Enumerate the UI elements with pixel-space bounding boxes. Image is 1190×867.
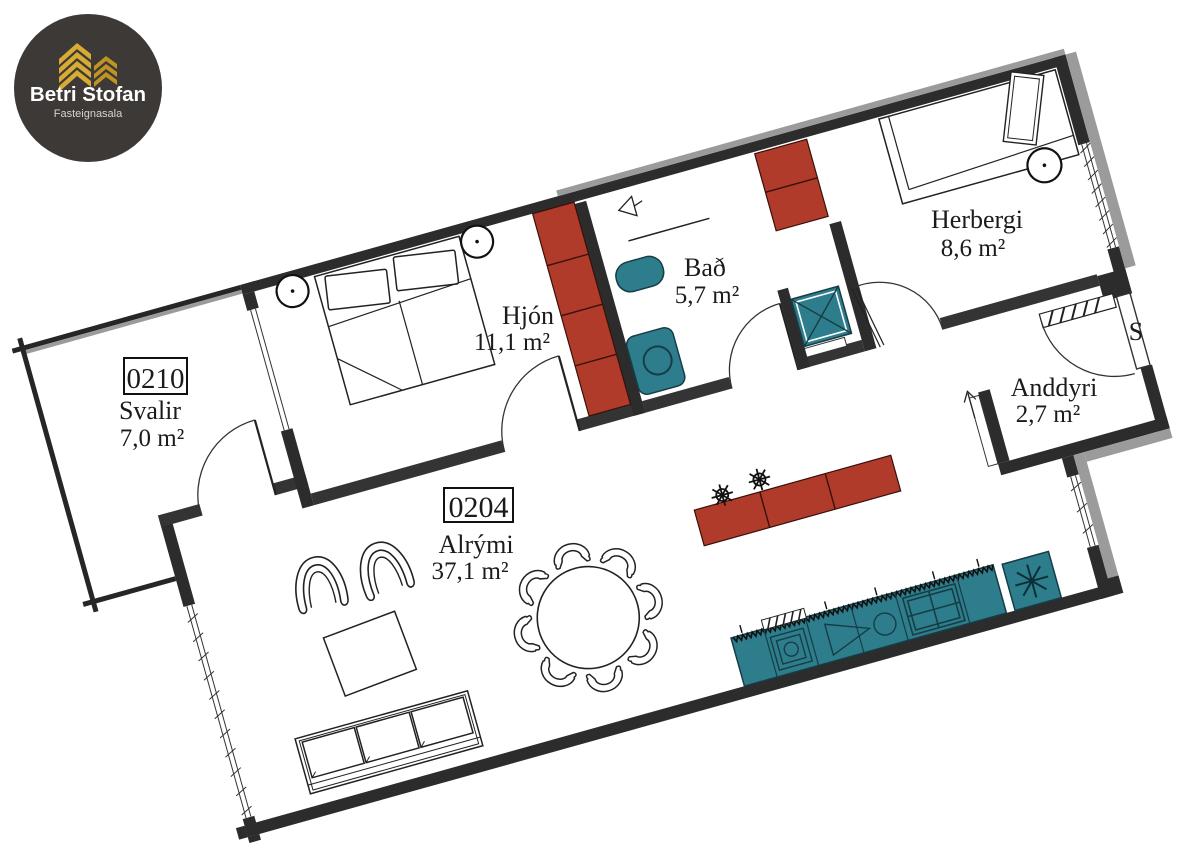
svg-text:37,1 m²: 37,1 m² (432, 558, 509, 585)
svg-text:8,6 m²: 8,6 m² (941, 235, 1005, 262)
svg-text:Hjón: Hjón (502, 301, 554, 330)
svg-text:S: S (1129, 317, 1143, 346)
svg-text:Herbergi: Herbergi (931, 205, 1023, 234)
svg-text:Betri Stofan: Betri Stofan (30, 83, 146, 106)
svg-text:5,7 m²: 5,7 m² (675, 282, 739, 309)
svg-text:Anddyri: Anddyri (1011, 373, 1098, 402)
svg-text:0204: 0204 (449, 491, 509, 524)
svg-text:2,7 m²: 2,7 m² (1016, 401, 1080, 428)
svg-text:0210: 0210 (127, 363, 185, 395)
svg-text:Fasteignasala: Fasteignasala (54, 108, 123, 120)
svg-text:11,1 m²: 11,1 m² (474, 329, 550, 356)
svg-text:7,0 m²: 7,0 m² (120, 425, 184, 452)
svg-text:Svalir: Svalir (119, 396, 181, 425)
svg-text:Alrými: Alrými (438, 530, 513, 559)
svg-text:Bað: Bað (684, 253, 726, 282)
